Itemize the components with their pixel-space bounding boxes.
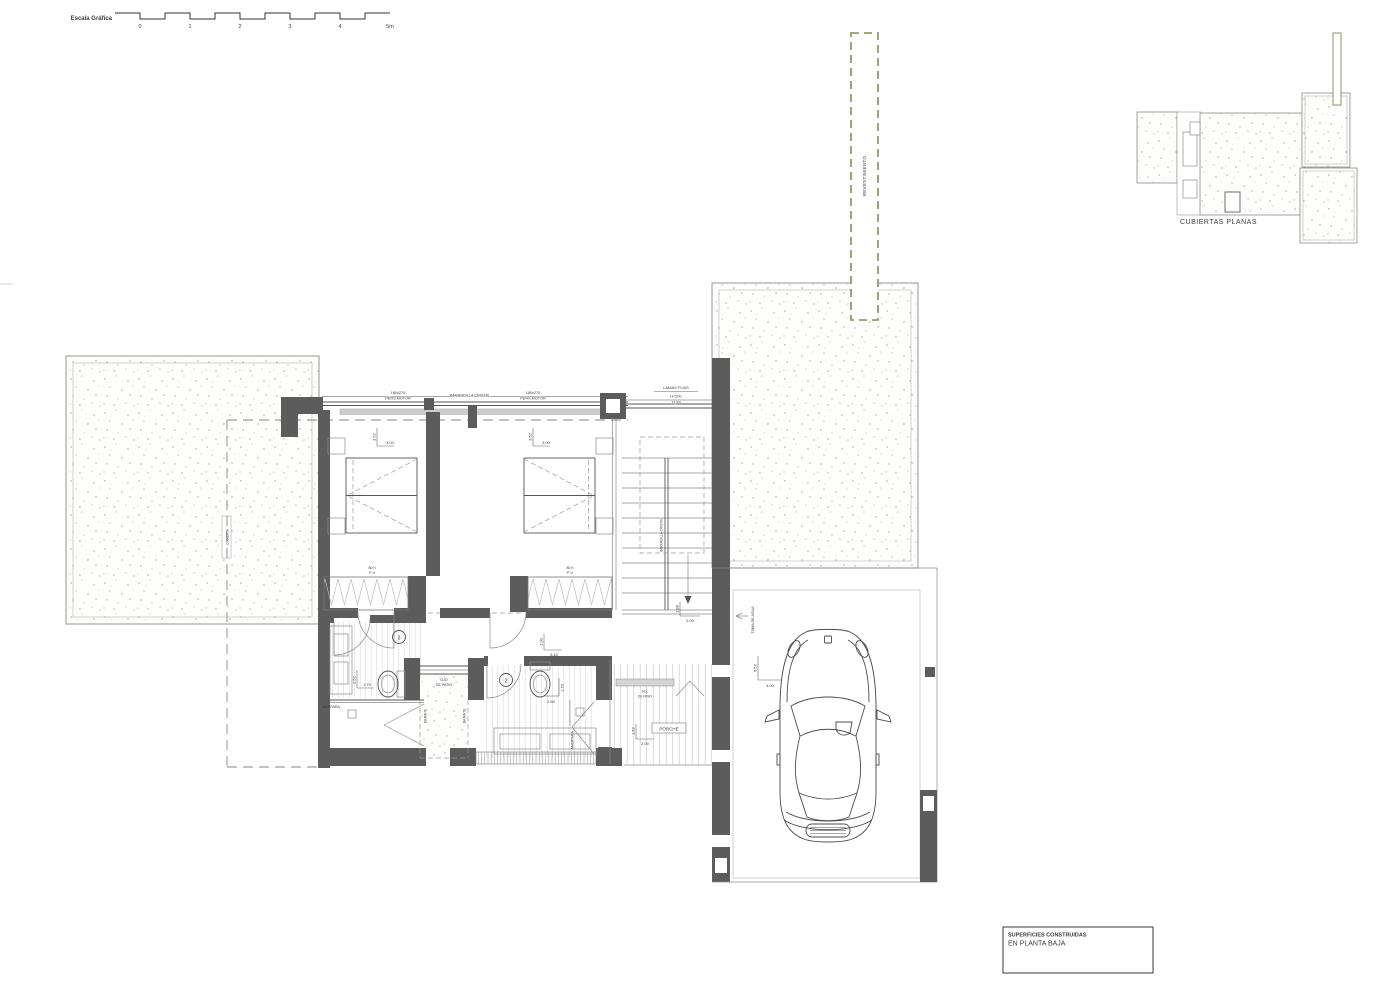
wall-east xyxy=(712,358,730,665)
facade-strip-label: REVESTIMIENTO xyxy=(862,156,867,197)
stairs-railing-label: BARANDILLA CRISTAL xyxy=(660,518,664,552)
bed-1 xyxy=(346,458,417,533)
bath3-number: 3 xyxy=(397,636,400,642)
door-swing xyxy=(490,612,526,648)
shower-door xyxy=(384,704,424,746)
garage-dim-h: 4.00 xyxy=(766,683,775,688)
floor-plan-drawing: Escala Gráfica 0 1 2 3 4 5m CUBIERTAS PL… xyxy=(0,0,1400,990)
lamas-title: LAMAS FIJAS xyxy=(663,385,689,390)
terrace-left-roof xyxy=(66,356,319,624)
key-plan-detail xyxy=(1225,192,1240,212)
railing-label: BARANDILLA CRISTAL xyxy=(450,394,490,398)
railing-post xyxy=(468,406,477,428)
title-block-line2: EN PLANTA BAJA xyxy=(1008,941,1066,948)
porch-dim-h: 2.00 xyxy=(641,741,650,746)
bath2-screen-label: MAMPARA xyxy=(571,730,575,749)
porch-door-line2: DE PASO xyxy=(638,695,652,699)
bath2-floor xyxy=(484,666,594,758)
key-plan-roof-left xyxy=(1137,112,1177,183)
garage-pillar-vent xyxy=(923,796,934,811)
scale-tick-5: 5m xyxy=(386,24,394,30)
bath2-dim-h: 2.60 xyxy=(547,699,556,704)
wall-corner-nw2 xyxy=(281,397,298,437)
walls xyxy=(318,358,730,882)
window-left-type: PERS.MOTOR xyxy=(385,397,411,401)
key-plan-detail xyxy=(1183,180,1197,198)
bath3-dim-v: 2.52 xyxy=(352,675,357,684)
window-right-type: PERS.MOTOR xyxy=(520,397,546,401)
scale-bar-steps xyxy=(115,13,390,19)
closet2-line1: 80 h xyxy=(567,566,574,570)
stairs-arrow-head xyxy=(685,596,692,604)
porch-door-line1: PTA. xyxy=(642,690,649,694)
water-intake: TOMA DE AGUA xyxy=(736,606,755,634)
facade-strip: REVESTIMIENTO xyxy=(851,33,878,320)
nightstand xyxy=(328,518,345,534)
stairs-dim-h: 2.00 xyxy=(686,618,695,623)
terrace-right-roof xyxy=(712,283,918,568)
key-plan-detail xyxy=(1190,122,1200,135)
garage: TOMA DE AGUA 6.52 4.00 xyxy=(712,568,937,882)
hall-dim-h: 3.10 xyxy=(550,652,559,657)
scale-tick-3: 3 xyxy=(288,24,291,30)
wall-south-west xyxy=(318,748,426,766)
terrace-left-tag: CUBIERTA xyxy=(226,528,230,545)
bedroom2-depth-dim: 3.52 xyxy=(528,432,533,441)
nightstand xyxy=(596,518,613,534)
shaft-side-right: BAJANTE xyxy=(463,709,467,723)
bath3-screen-label: MAMPARA xyxy=(322,705,341,709)
stairs: BARANDILLA CRISTAL 1.88 2.00 xyxy=(622,437,712,623)
stairs-dim-v: 1.88 xyxy=(675,604,680,613)
wardrobe-2 xyxy=(528,577,612,610)
stairs-void-dashed xyxy=(640,437,704,553)
shower-drain xyxy=(348,710,356,718)
bedroom2-width-dim: 3.00 xyxy=(542,440,551,445)
window-band: 180x270 PERS.MOTOR BARANDILLA CRISTAL 18… xyxy=(281,391,628,437)
scale-tick-2: 2 xyxy=(238,24,241,30)
bath3-dim-h: 1.70 xyxy=(363,682,372,687)
hall-dim-v: 1.00 xyxy=(539,637,544,646)
shaft-label-1: OJO xyxy=(440,678,448,682)
key-plan-chimney xyxy=(1333,33,1341,105)
wall-east-vent xyxy=(715,858,727,873)
bedroom1-depth-dim: 3.52 xyxy=(372,432,377,441)
window-left-size: 180x270 xyxy=(391,391,406,395)
porch-dim-v: 1.52 xyxy=(631,726,636,735)
key-plan-title: CUBIERTAS PLANAS xyxy=(1180,219,1257,226)
hall-dimensions: 1.00 3.10 xyxy=(539,634,563,657)
closet1-line2: P-V xyxy=(369,571,376,575)
bedroom1-width-dim: 3.00 xyxy=(386,440,395,445)
key-plan-roof-main xyxy=(1200,113,1305,215)
shower-3: MAMPARA xyxy=(322,700,424,746)
closet1-line1: 80 h xyxy=(369,566,376,570)
garage-water-label: TOMA DE AGUA xyxy=(751,606,755,634)
window-right-size: 180x270 xyxy=(526,391,541,395)
scale-tick-4: 4 xyxy=(338,24,341,30)
shaft-side-left: BAJANTE xyxy=(424,709,428,723)
pillar-ne-core xyxy=(606,399,620,413)
scale-tick-1: 1 xyxy=(188,24,191,30)
title-block: SUPERFICIES CONSTRUIDAS EN PLANTA BAJA xyxy=(1003,927,1153,973)
terrace-left: CUBIERTA xyxy=(66,356,319,624)
nightstand xyxy=(328,438,345,454)
closet2-line2: P-V xyxy=(567,571,574,575)
key-plan-roof-ne xyxy=(1302,93,1350,167)
shaft-label-2: DE PATIO xyxy=(436,683,452,687)
bath2-number: 2 xyxy=(504,679,507,685)
window-mullion xyxy=(424,398,434,410)
lamas-fijas: LAMAS FIJAS H=200 11,83 xyxy=(626,385,712,408)
scale-tick-0: 0 xyxy=(138,24,141,30)
car-top-view xyxy=(765,629,891,842)
nightstand xyxy=(596,438,613,454)
wall-between-bedrooms xyxy=(426,412,440,576)
floor-plan-sheet: Escala Gráfica 0 1 2 3 4 5m CUBIERTAS PL… xyxy=(0,0,1400,990)
garage-dim-v: 6.52 xyxy=(753,663,758,672)
key-plan-roof-se xyxy=(1300,168,1357,243)
terrace-right xyxy=(712,283,918,568)
garage-door-post xyxy=(925,667,935,677)
scale-bar: Escala Gráfica 0 1 2 3 4 5m xyxy=(71,13,395,30)
wall-bath2-porch xyxy=(596,656,612,700)
key-plan: CUBIERTAS PLANAS xyxy=(1137,33,1357,243)
bed-2 xyxy=(524,458,595,533)
porch-name: PORCHE xyxy=(659,727,678,732)
lamas-height: H=200 xyxy=(670,395,681,399)
wardrobe-1 xyxy=(324,577,408,610)
scale-bar-label: Escala Gráfica xyxy=(71,16,113,22)
key-plan-detail xyxy=(1183,132,1197,166)
bath2-dim-v: 1.70 xyxy=(560,683,565,692)
porch-lintel xyxy=(616,679,674,686)
lamas-dim: 11,83 xyxy=(671,401,680,405)
title-block-line1: SUPERFICIES CONSTRUIDAS xyxy=(1008,933,1087,939)
